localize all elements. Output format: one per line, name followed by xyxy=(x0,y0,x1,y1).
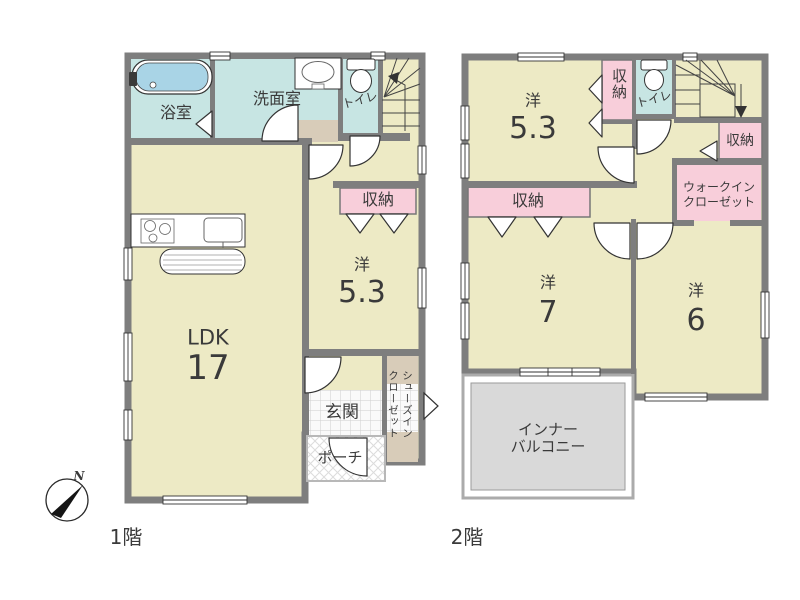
storage-top-text: 収納 xyxy=(609,68,630,124)
shoe-closet-label-col1: シューズイン xyxy=(400,370,414,464)
western6-prefix: 洋 xyxy=(688,283,704,299)
compass xyxy=(46,479,88,521)
western53-size-2f: 5.3 xyxy=(509,114,557,144)
porch-label: ポーチ xyxy=(317,451,362,466)
floor2-title: 2階 xyxy=(451,527,484,547)
walk-in-closet-label-1: ウォークイン xyxy=(683,181,755,193)
floorplan-graphic xyxy=(0,0,800,600)
storage-right-label-2f: 収納 xyxy=(726,134,754,148)
washbasin xyxy=(295,58,341,89)
storage-mid-label-2f: 収納 xyxy=(512,193,544,209)
western53-prefix-2f: 洋 xyxy=(525,93,541,109)
bath-label: 浴室 xyxy=(160,105,192,121)
washroom-label: 洗面室 xyxy=(253,91,301,107)
storage-top-label-2f: 収納 xyxy=(609,68,630,124)
front-door-marker xyxy=(424,393,438,419)
balcony-label-2: バルコニー xyxy=(511,440,586,455)
bathtub xyxy=(129,60,212,94)
western7-size: 7 xyxy=(538,298,557,328)
western53-size-1f: 5.3 xyxy=(338,278,386,308)
entrance-label: 玄関 xyxy=(325,405,359,422)
ldk-prefix: LDK xyxy=(187,328,229,349)
compass-north-label: N xyxy=(74,470,85,482)
shoe-closet-label: シューズイン クローゼット xyxy=(386,370,414,464)
western6-size: 6 xyxy=(686,306,705,336)
floor1-title: 1階 xyxy=(110,527,143,547)
shoe-closet-label-col2: クローゼット xyxy=(386,370,400,464)
storage-label-1f: 収納 xyxy=(362,192,394,208)
floorplan-page: 浴室 洗面室 トイレ 収納 洋 5.3 LDK 17 玄関 ポーチ シューズイン… xyxy=(0,0,800,600)
kitchen-counter xyxy=(131,214,245,248)
balcony-label-1: インナー xyxy=(518,423,578,438)
kitchen-island xyxy=(160,249,245,274)
western7-prefix: 洋 xyxy=(540,275,556,291)
western53-prefix-1f: 洋 xyxy=(354,257,370,273)
ldk-size: 17 xyxy=(186,351,229,385)
walk-in-closet-label-2: クローゼット xyxy=(683,196,755,208)
